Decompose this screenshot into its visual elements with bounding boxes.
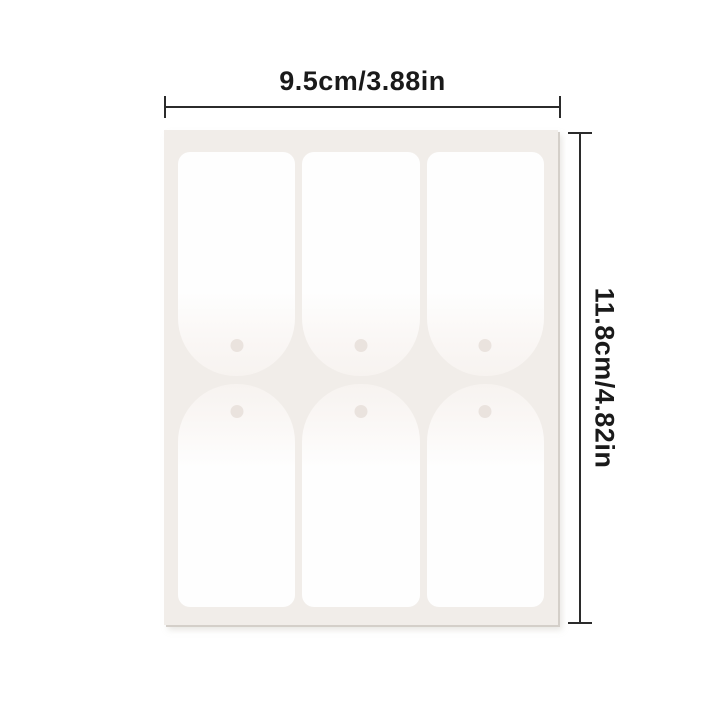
tag-hole	[479, 405, 492, 418]
tag-grid	[178, 152, 544, 607]
width-dimension-cap-right	[559, 96, 561, 118]
tag-hole	[230, 339, 243, 352]
price-tag	[302, 152, 419, 376]
product-diagram: 9.5cm/3.88in 11.8cm/4.82in	[0, 0, 720, 720]
width-dimension-rule	[164, 106, 561, 108]
tag-hole	[354, 405, 367, 418]
height-dimension-cap-bottom	[568, 622, 592, 624]
width-dimension-line	[164, 96, 561, 118]
price-tag	[427, 152, 544, 376]
price-tag	[427, 384, 544, 608]
height-dimension-rule	[579, 132, 581, 624]
tag-sheet	[164, 130, 558, 625]
price-tag	[178, 384, 295, 608]
height-dimension-label: 11.8cm/4.82in	[589, 288, 620, 469]
price-tag	[178, 152, 295, 376]
tag-hole	[479, 339, 492, 352]
tag-hole	[354, 339, 367, 352]
price-tag	[302, 384, 419, 608]
width-dimension-label: 9.5cm/3.88in	[164, 66, 561, 97]
tag-hole	[230, 405, 243, 418]
